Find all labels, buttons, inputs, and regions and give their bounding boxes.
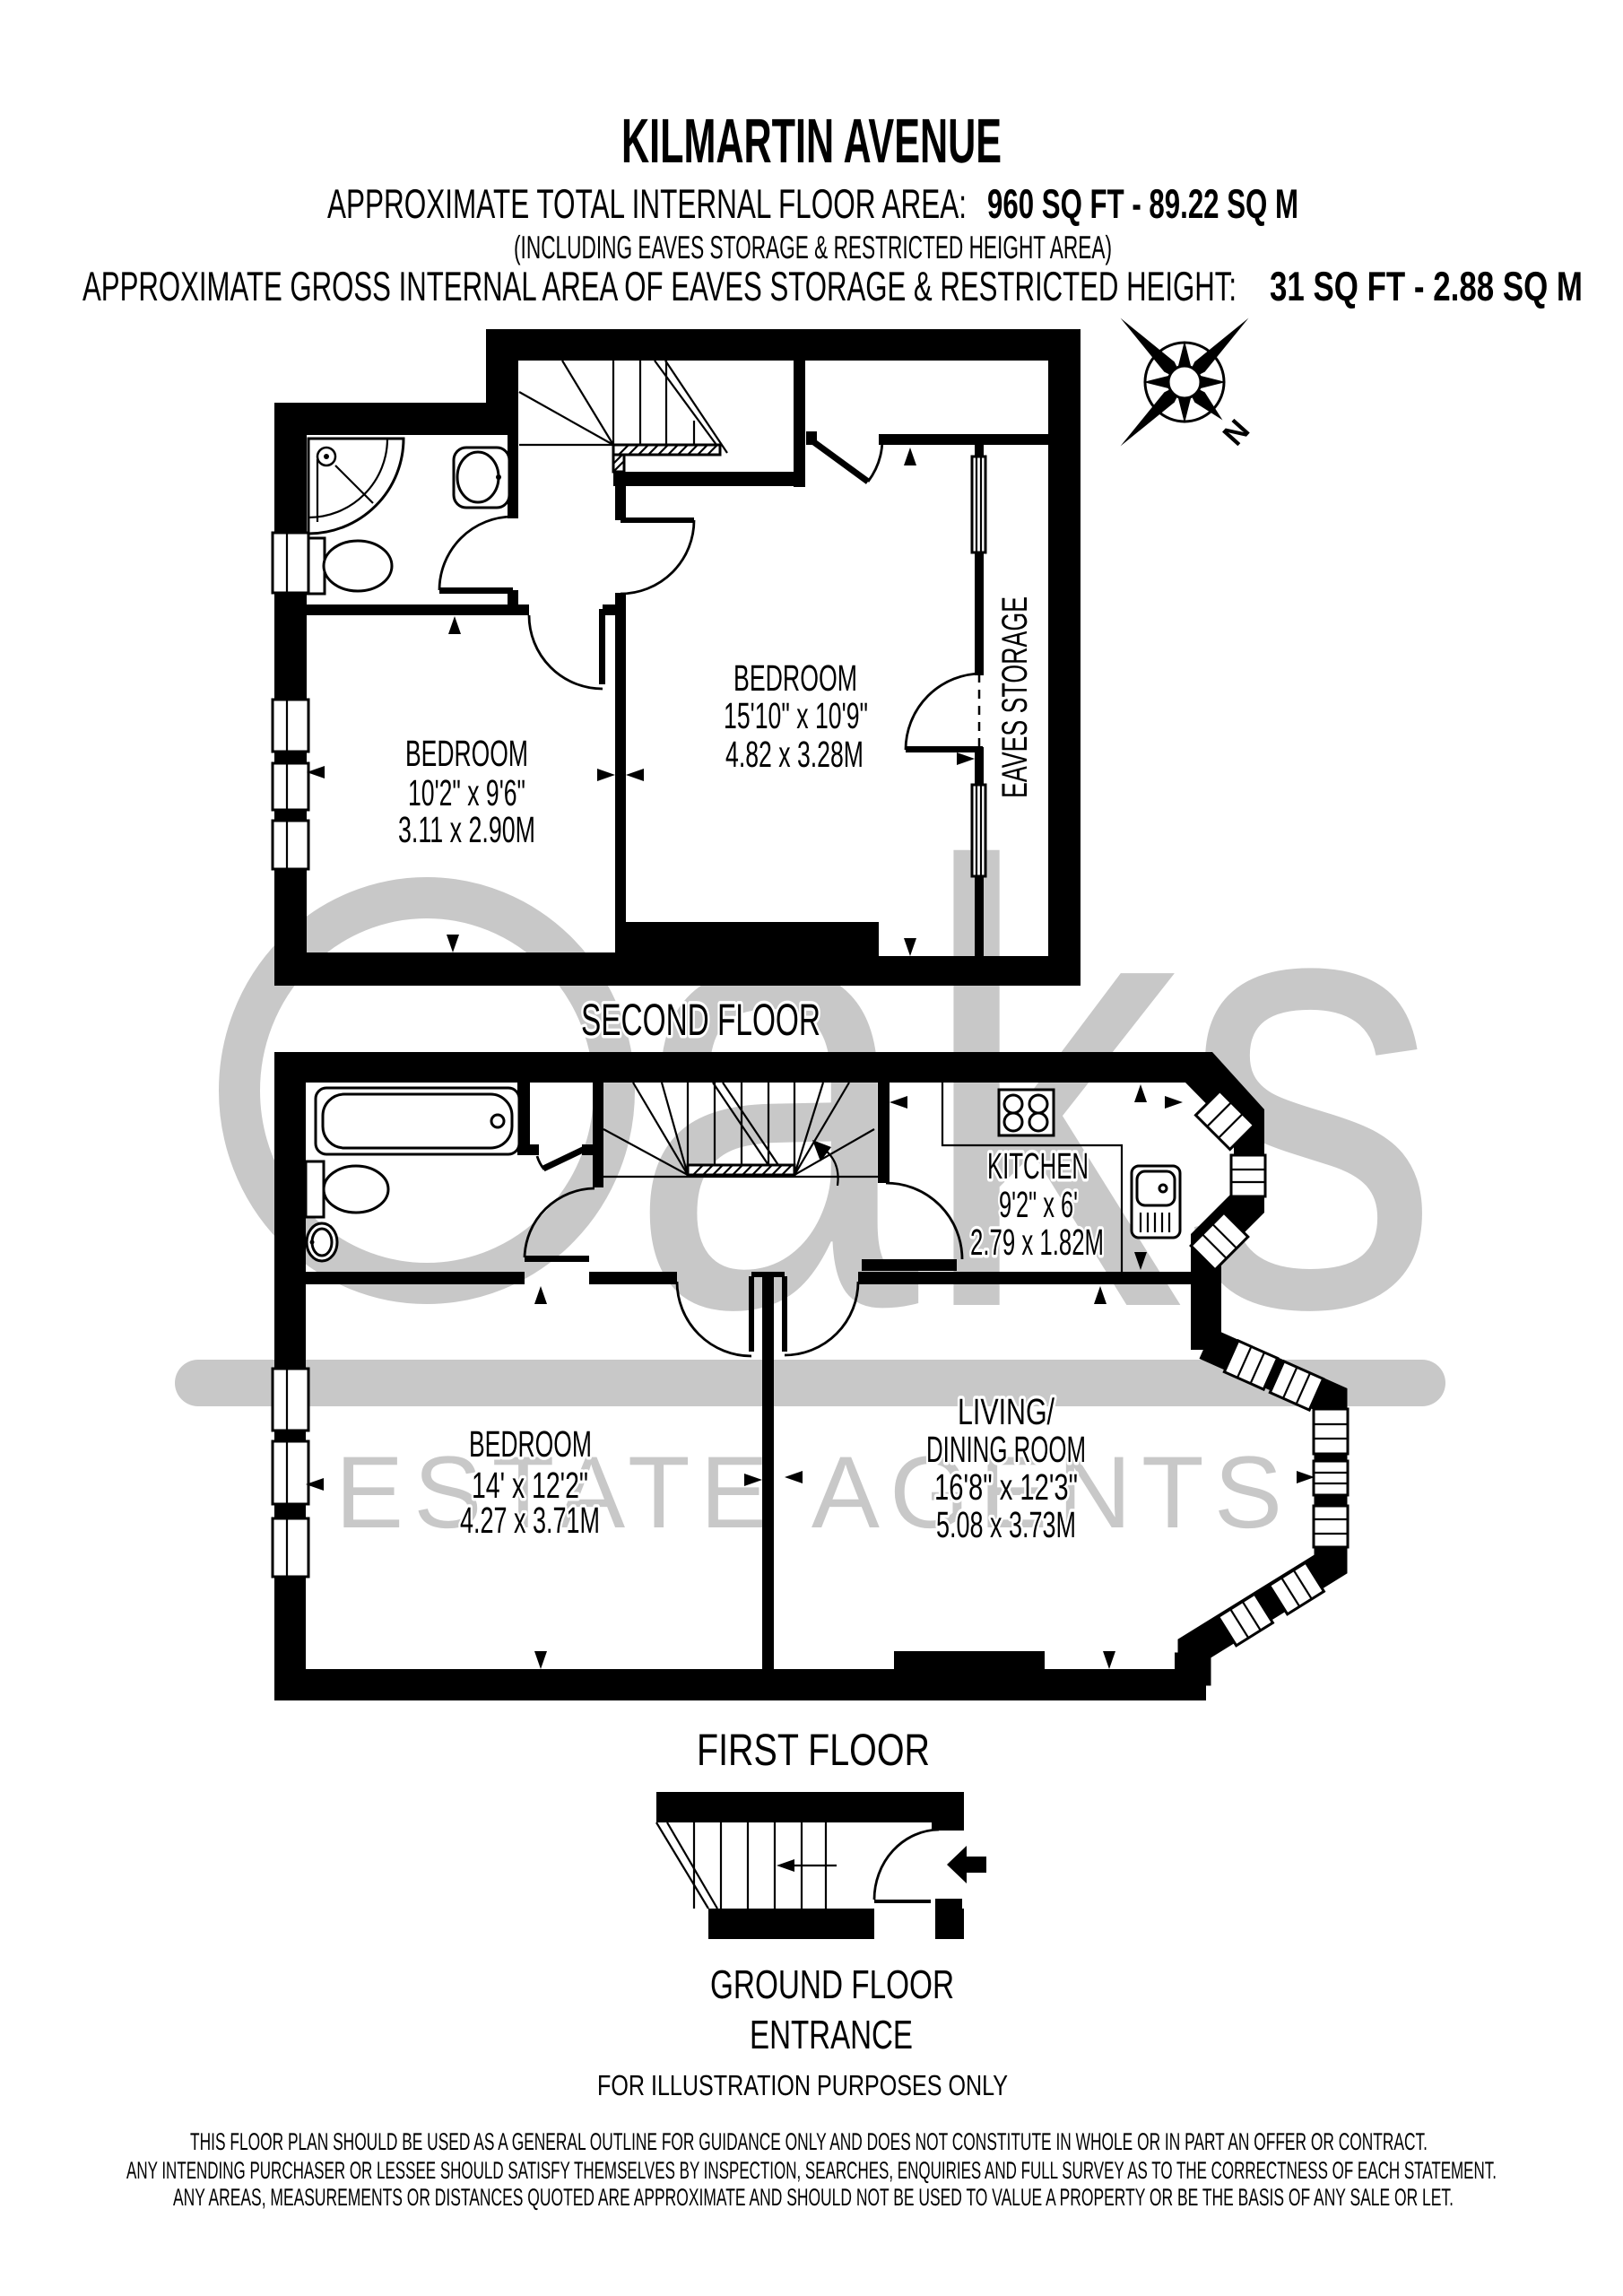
svg-text:5.08 x 3.73M: 5.08 x 3.73M <box>936 1504 1076 1545</box>
svg-text:ANY INTENDING PURCHASER OR LES: ANY INTENDING PURCHASER OR LESSEE SHOULD… <box>126 2157 1497 2184</box>
svg-text:BEDROOM: BEDROOM <box>733 657 857 699</box>
svg-text:GROUND FLOOR: GROUND FLOOR <box>710 1961 954 2007</box>
svg-text:(INCLUDING EAVES STORAGE & RES: (INCLUDING EAVES STORAGE & RESTRICTED HE… <box>514 229 1112 265</box>
svg-text:2.79 x 1.82M: 2.79 x 1.82M <box>970 1222 1104 1263</box>
svg-text:KILMARTIN AVENUE: KILMARTIN AVENUE <box>621 106 1002 176</box>
svg-text:9'2" x 6': 9'2" x 6' <box>999 1184 1078 1225</box>
svg-text:BEDROOM: BEDROOM <box>469 1423 592 1465</box>
svg-text:FIRST FLOOR: FIRST FLOOR <box>697 1725 930 1775</box>
svg-text:3.11 x 2.90M: 3.11 x 2.90M <box>398 809 535 850</box>
svg-text:10'2" x 9'6": 10'2" x 9'6" <box>408 772 525 813</box>
svg-text:4.82 x 3.28M: 4.82 x 3.28M <box>725 734 864 775</box>
svg-text:15'10" x 10'9": 15'10" x 10'9" <box>724 695 868 736</box>
svg-text:ANY AREAS, MEASUREMENTS OR DIS: ANY AREAS, MEASUREMENTS OR DISTANCES QUO… <box>173 2184 1454 2211</box>
svg-text:960 SQ FT - 89.22 SQ M: 960 SQ FT - 89.22 SQ M <box>987 180 1298 227</box>
svg-text:31 SQ FT - 2.88 SQ M: 31 SQ FT - 2.88 SQ M <box>1270 263 1583 309</box>
svg-text:SECOND FLOOR: SECOND FLOOR <box>581 995 820 1045</box>
svg-text:LIVING/: LIVING/ <box>958 1391 1055 1432</box>
svg-text:BEDROOM: BEDROOM <box>405 733 528 774</box>
svg-text:16'8" x 12'3": 16'8" x 12'3" <box>934 1466 1078 1508</box>
svg-text:EAVES STORAGE: EAVES STORAGE <box>995 596 1035 798</box>
svg-text:APPROXIMATE GROSS INTERNAL ARE: APPROXIMATE GROSS INTERNAL AREA OF EAVES… <box>82 263 1237 309</box>
svg-text:FOR ILLUSTRATION PURPOSES ONLY: FOR ILLUSTRATION PURPOSES ONLY <box>597 2069 1008 2101</box>
svg-text:APPROXIMATE TOTAL INTERNAL FLO: APPROXIMATE TOTAL INTERNAL FLOOR AREA: <box>327 180 967 227</box>
svg-text:4.27 x 3.71M: 4.27 x 3.71M <box>460 1500 600 1541</box>
svg-text:ENTRANCE: ENTRANCE <box>750 2012 913 2057</box>
svg-text:THIS FLOOR PLAN SHOULD BE USED: THIS FLOOR PLAN SHOULD BE USED AS A GENE… <box>190 2128 1428 2155</box>
svg-text:KITCHEN: KITCHEN <box>987 1145 1089 1187</box>
svg-text:DINING ROOM: DINING ROOM <box>926 1429 1086 1470</box>
